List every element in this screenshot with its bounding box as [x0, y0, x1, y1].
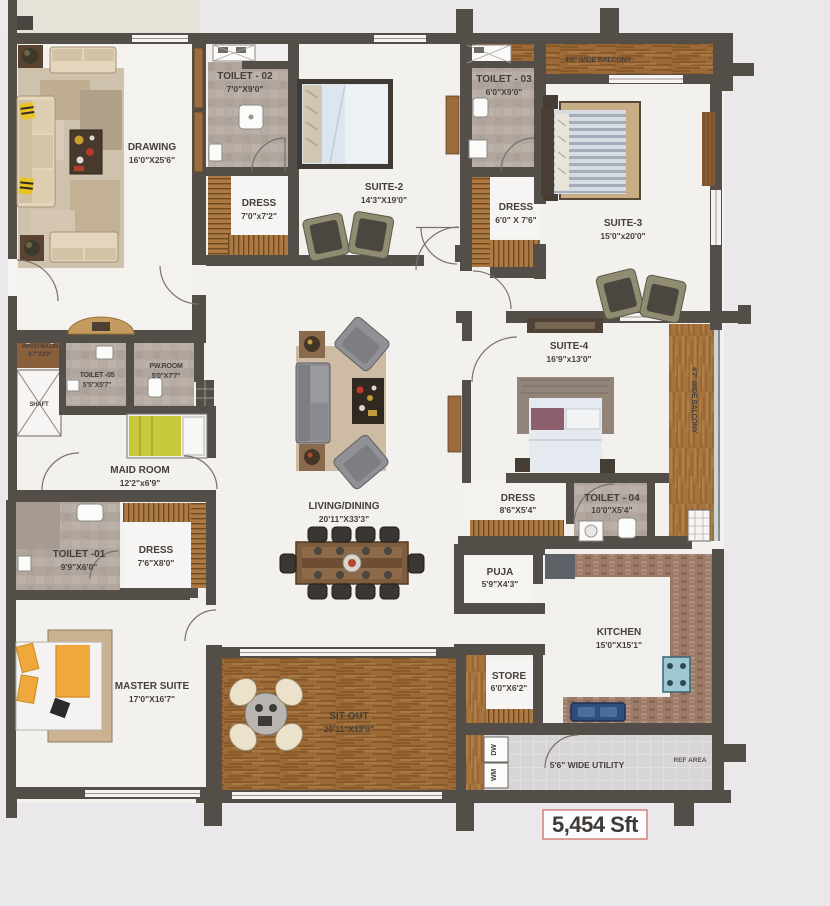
svg-text:DRESS: DRESS	[501, 493, 536, 504]
svg-text:5'9"X4'3": 5'9"X4'3"	[482, 579, 519, 589]
svg-text:PUJA: PUJA	[487, 567, 514, 578]
svg-text:20'11"X33'3": 20'11"X33'3"	[319, 514, 369, 524]
svg-text:TOILET - 04: TOILET - 04	[584, 493, 640, 504]
svg-text:20'11"X12'0": 20'11"X12'0"	[324, 724, 374, 734]
svg-text:15'0"X15'1": 15'0"X15'1"	[596, 640, 642, 650]
svg-text:4'7"X3'9": 4'7"X3'9"	[28, 352, 52, 358]
svg-text:DRESS: DRESS	[139, 545, 174, 556]
svg-text:5'5"X5'7": 5'5"X5'7"	[83, 382, 111, 389]
svg-text:15'0"x20'0": 15'0"x20'0"	[600, 231, 645, 241]
svg-text:DRESS: DRESS	[242, 198, 277, 209]
svg-text:MAID ROOM: MAID ROOM	[110, 465, 169, 476]
svg-text:16'9"x13'0": 16'9"x13'0"	[546, 354, 591, 364]
svg-text:5'6" WIDE UTILITY: 5'6" WIDE UTILITY	[550, 760, 625, 770]
svg-text:SUITE-3: SUITE-3	[604, 218, 643, 229]
svg-text:PW.ROOM: PW.ROOM	[149, 363, 183, 370]
svg-text:6'0" X 7'6": 6'0" X 7'6"	[495, 215, 536, 225]
svg-text:MASTER SUITE: MASTER SUITE	[115, 681, 190, 692]
svg-text:LIVING/DINING: LIVING/DINING	[308, 501, 379, 512]
svg-text:TOILET -05: TOILET -05	[80, 372, 115, 379]
svg-text:SUITE-4: SUITE-4	[550, 341, 589, 352]
svg-text:7'0"x7'2": 7'0"x7'2"	[241, 211, 277, 221]
svg-text:6'0"X9'0": 6'0"X9'0"	[486, 87, 523, 97]
svg-text:SIT OUT: SIT OUT	[329, 711, 368, 722]
svg-text:DW: DW	[491, 744, 498, 756]
svg-text:STORE: STORE	[492, 671, 527, 682]
svg-text:12'2"x6'9": 12'2"x6'9"	[120, 478, 160, 488]
svg-text:SHAFT: SHAFT	[30, 402, 50, 408]
svg-text:17'0"X16'7": 17'0"X16'7"	[129, 694, 175, 704]
svg-text:5,454 Sft: 5,454 Sft	[552, 812, 639, 837]
svg-text:DRESS: DRESS	[499, 202, 534, 213]
svg-text:6'0"X6'2": 6'0"X6'2"	[491, 683, 528, 693]
svg-text:TOILET - 03: TOILET - 03	[476, 74, 532, 85]
svg-text:WASH BASIN: WASH BASIN	[22, 344, 58, 350]
svg-text:8'6"X5'4": 8'6"X5'4"	[500, 505, 537, 515]
svg-text:TOILET -01: TOILET -01	[53, 549, 106, 560]
svg-text:7'6"X8'0": 7'6"X8'0"	[138, 558, 175, 568]
svg-text:4'7" WIDE BALCONY: 4'7" WIDE BALCONY	[690, 367, 697, 434]
svg-text:SUITE-2: SUITE-2	[365, 182, 404, 193]
svg-text:9'9"X6'0": 9'9"X6'0"	[61, 562, 98, 572]
svg-text:KITCHEN: KITCHEN	[597, 627, 641, 638]
svg-text:10'0"X5'4": 10'0"X5'4"	[591, 505, 632, 515]
svg-text:4'0" WIDE BALCONY: 4'0" WIDE BALCONY	[565, 57, 632, 64]
svg-text:REF AREA: REF AREA	[674, 757, 707, 764]
svg-text:14'3"X19'0": 14'3"X19'0"	[361, 195, 407, 205]
svg-text:7'0"X9'0": 7'0"X9'0"	[227, 84, 264, 94]
svg-text:16'0"X25'6": 16'0"X25'6"	[129, 155, 175, 165]
svg-text:DRAWING: DRAWING	[128, 142, 177, 153]
svg-text:TOILET - 02: TOILET - 02	[217, 71, 273, 82]
svg-text:5'0"X7'7": 5'0"X7'7"	[152, 373, 180, 380]
svg-text:WM: WM	[491, 769, 498, 781]
